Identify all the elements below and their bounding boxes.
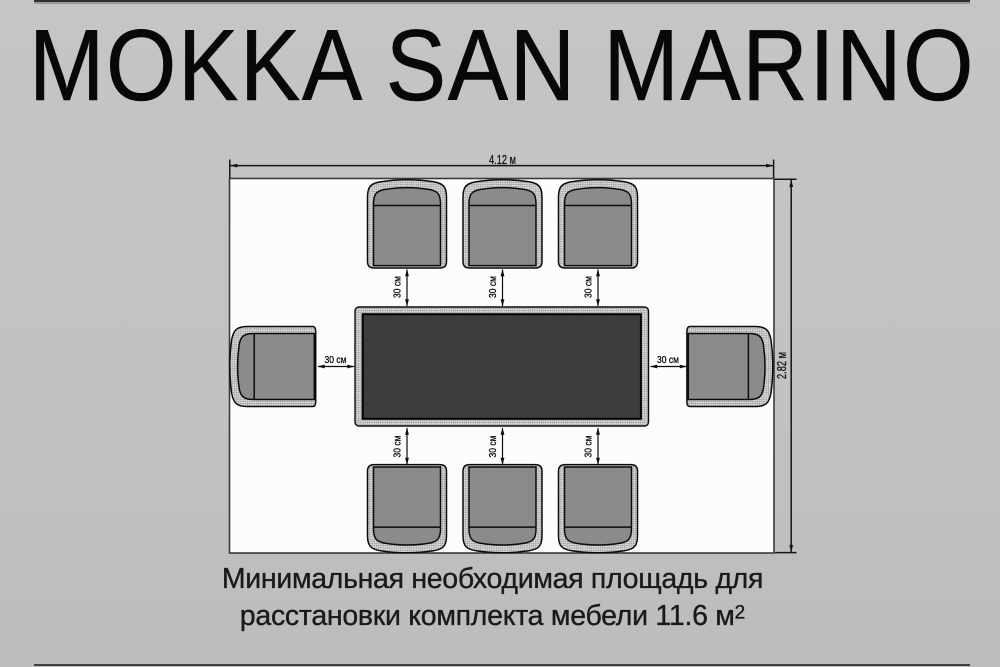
svg-text:30 см: 30 см: [487, 436, 499, 458]
svg-text:30 см: 30 см: [392, 276, 404, 298]
svg-text:30 см: 30 см: [657, 354, 679, 366]
svg-text:30 см: 30 см: [487, 276, 499, 298]
svg-text:30 см: 30 см: [583, 276, 595, 298]
svg-text:2.82 м: 2.82 м: [775, 352, 789, 379]
svg-text:30 см: 30 см: [583, 436, 595, 458]
svg-text:30 см: 30 см: [392, 436, 404, 458]
svg-text:30 см: 30 см: [325, 354, 347, 366]
svg-text:4.12 м: 4.12 м: [489, 153, 516, 167]
